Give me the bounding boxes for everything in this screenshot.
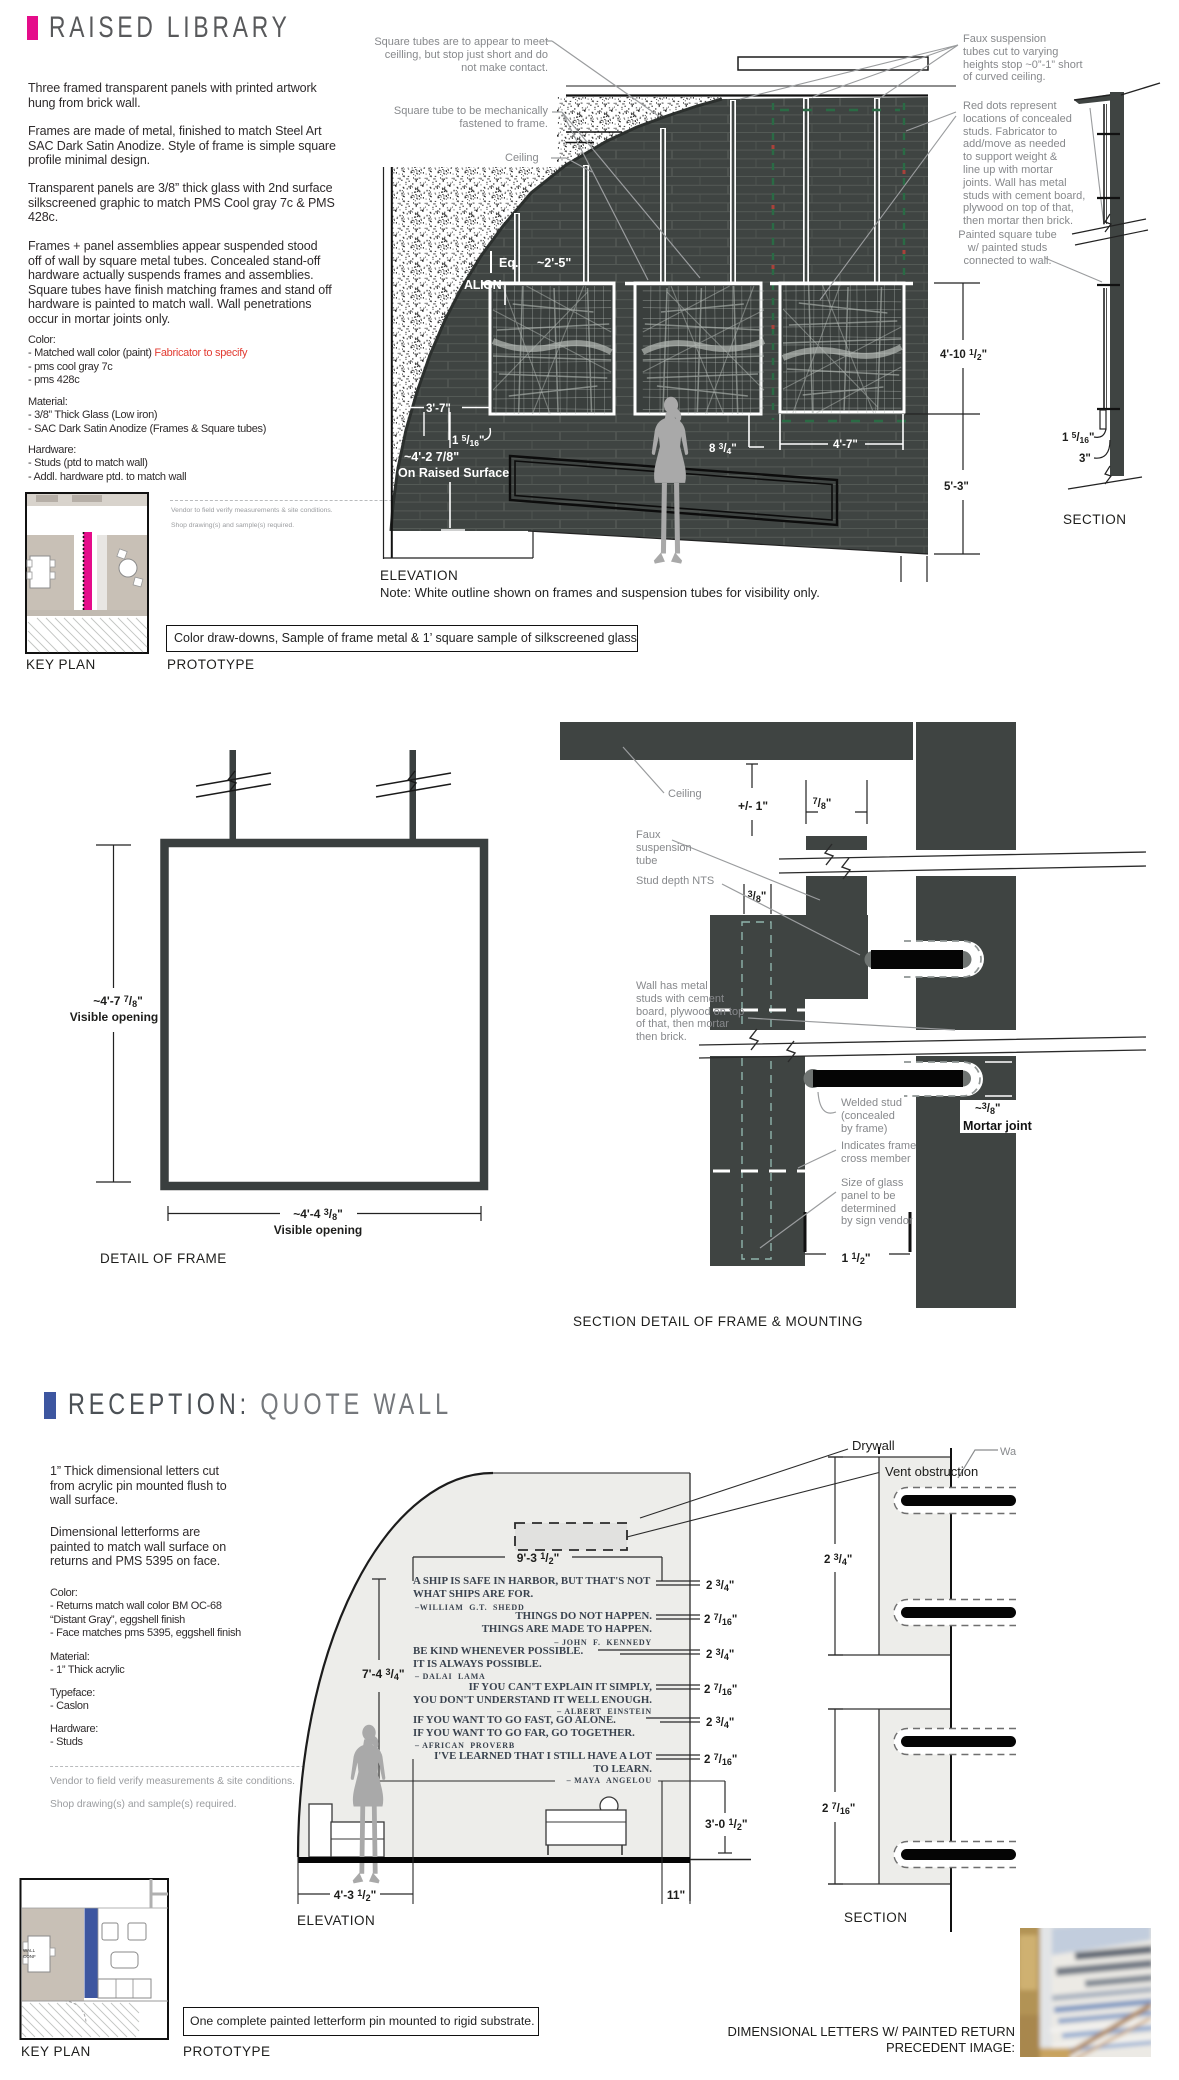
svg-text:7'-4 3/4": 7'-4 3/4": [362, 1667, 405, 1682]
svg-text:3'-0 1/2": 3'-0 1/2": [705, 1817, 748, 1832]
svg-text:4'-3 1/2": 4'-3 1/2": [334, 1888, 377, 1903]
svg-text:8 3/4": 8 3/4": [709, 441, 737, 456]
svg-text:2 7/16": 2 7/16": [704, 1612, 737, 1627]
svg-text:2 7/16": 2 7/16": [704, 1752, 737, 1767]
svg-text:1 5/16": 1 5/16": [452, 433, 484, 448]
svg-text:7/8": 7/8": [813, 796, 832, 811]
svg-text:+/- 1": +/- 1": [738, 799, 768, 813]
svg-text:WALL: WALL: [23, 1948, 36, 1953]
svg-text:2 7/16": 2 7/16": [822, 1801, 855, 1816]
svg-text:4'-10 1/2": 4'-10 1/2": [940, 347, 987, 362]
svg-text:3'-7": 3'-7": [426, 403, 451, 415]
svg-text:3": 3": [1079, 453, 1091, 465]
svg-text:~3/8": ~3/8": [975, 1101, 1000, 1116]
svg-text:5'-3": 5'-3": [944, 481, 969, 493]
svg-text:Eq.: Eq.: [499, 256, 518, 270]
svg-text:CONF: CONF: [23, 1954, 36, 1959]
svg-text:1 5/16": 1 5/16": [1062, 430, 1094, 445]
svg-text:On Raised Surface: On Raised Surface: [398, 466, 509, 480]
svg-text:Visible opening: Visible opening: [70, 1010, 158, 1024]
svg-text:1 1/2": 1 1/2": [841, 1251, 870, 1266]
svg-text:2 3/4": 2 3/4": [706, 1578, 734, 1593]
svg-text:ALIGN: ALIGN: [464, 278, 502, 292]
svg-text:Wa: Wa: [1000, 1446, 1017, 1458]
svg-text:11": 11": [667, 1888, 685, 1902]
svg-text:9'-3 1/2": 9'-3 1/2": [517, 1551, 560, 1566]
svg-text:~4'-2 7/8": ~4'-2 7/8": [404, 450, 459, 464]
svg-text:Mortar joint: Mortar joint: [963, 1119, 1033, 1133]
svg-text:4'-7": 4'-7": [833, 439, 858, 451]
svg-text:2 3/4": 2 3/4": [706, 1647, 734, 1662]
svg-text:~4'-4 3/8": ~4'-4 3/8": [293, 1207, 343, 1222]
svg-text:2 3/4": 2 3/4": [824, 1552, 852, 1567]
svg-text:2 7/16": 2 7/16": [704, 1682, 737, 1697]
svg-text:Visible opening: Visible opening: [274, 1223, 362, 1237]
svg-text:2 3/4": 2 3/4": [706, 1715, 734, 1730]
svg-text:~2'-5": ~2'-5": [537, 256, 571, 270]
svg-text:~4'-7 7/8": ~4'-7 7/8": [93, 994, 143, 1009]
